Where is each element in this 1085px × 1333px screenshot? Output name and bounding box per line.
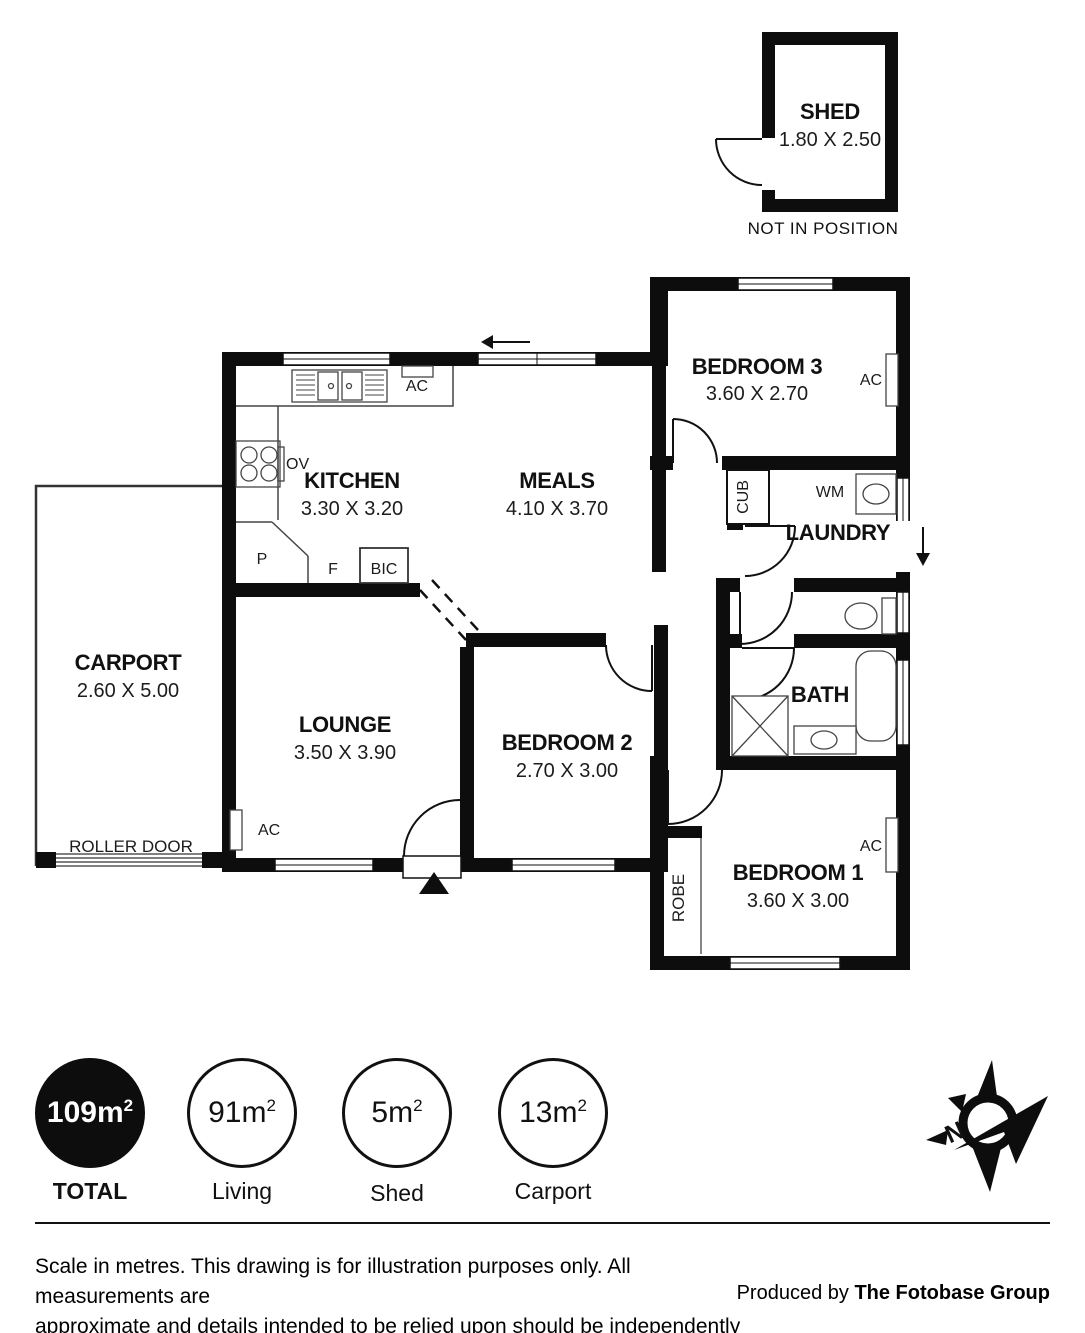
wm-label: WM	[816, 484, 844, 501]
bic-label: BIC	[371, 561, 398, 578]
footer-divider	[35, 1222, 1050, 1224]
bedroom2-dims: 2.70 X 3.00	[516, 760, 618, 782]
shed-area-circle: 5m2	[342, 1058, 452, 1168]
entry-arrow-laundry-icon	[916, 527, 930, 566]
total-area-value: 109m	[47, 1096, 124, 1129]
laundry-label: LAUNDRY	[786, 520, 891, 545]
carport-outline	[36, 486, 222, 866]
carport-area-circle: 13m2	[498, 1058, 608, 1168]
bathtub-icon	[856, 651, 896, 741]
meals-dims: 4.10 X 3.70	[506, 498, 608, 520]
shed-label: SHED	[800, 99, 860, 124]
producer-credit: Produced by The Fotobase Group	[737, 1282, 1050, 1305]
fridge-label: F	[328, 561, 338, 578]
shed-dims: 1.80 X 2.50	[779, 129, 881, 151]
disclaimer-line1: Scale in metres. This drawing is for ill…	[35, 1252, 755, 1312]
shed-door	[716, 139, 762, 185]
pantry-label: P	[257, 551, 268, 568]
ov-label: OV	[286, 456, 309, 473]
carport-area-label: Carport	[473, 1178, 633, 1205]
vanity-icon	[794, 726, 856, 754]
lounge-dims: 3.50 X 3.90	[294, 742, 396, 764]
floorplan-page: SHED 1.80 X 2.50 NOT IN POSITION	[0, 0, 1085, 1333]
bedroom3-ac-label: AC	[860, 372, 882, 389]
compass-north-icon: N	[926, 1060, 1048, 1192]
kitchen-dims: 3.30 X 3.20	[301, 498, 403, 520]
disclaimer-text: Scale in metres. This drawing is for ill…	[35, 1252, 755, 1333]
living-area-circle: 91m2	[187, 1058, 297, 1168]
kitchen-ac-box	[402, 366, 433, 377]
washing-machine-icon	[856, 474, 896, 514]
kitchen-ac-label: AC	[406, 378, 428, 395]
lounge-label: LOUNGE	[299, 712, 391, 737]
bedroom3-label: BEDROOM 3	[692, 354, 823, 379]
shed-note: NOT IN POSITION	[748, 219, 899, 238]
robe-label: ROBE	[669, 874, 688, 922]
living-area-value: 91m	[208, 1096, 266, 1129]
cub-label: CUB	[735, 480, 752, 514]
carport-area-value: 13m	[519, 1096, 577, 1129]
produced-by-text: Produced by	[737, 1282, 855, 1304]
living-area-label: Living	[162, 1178, 322, 1205]
toilet-icon	[845, 598, 896, 634]
total-area-circle: 109m2	[35, 1058, 145, 1168]
bedroom1-dims: 3.60 X 3.00	[747, 890, 849, 912]
laundry-exterior-door	[895, 521, 911, 572]
dashed-opening	[420, 580, 478, 640]
lounge-ac-label: AC	[258, 822, 280, 839]
ac-units	[230, 354, 898, 872]
entry-door-leaf	[403, 856, 461, 878]
sink-icon	[292, 370, 387, 402]
entry-arrow-top-icon	[481, 335, 530, 349]
shower-icon	[732, 696, 788, 756]
shed-area-value: 5m	[371, 1096, 413, 1129]
kitchen-label: KITCHEN	[304, 468, 400, 493]
bedroom3-dims: 3.60 X 2.70	[706, 383, 808, 405]
bedroom1-label: BEDROOM 1	[733, 860, 864, 885]
meals-label: MEALS	[519, 468, 595, 493]
bath-label: BATH	[791, 682, 849, 707]
total-area-label: TOTAL	[10, 1178, 170, 1205]
bedroom1-ac-label: AC	[860, 838, 882, 855]
bedroom2-label: BEDROOM 2	[502, 730, 633, 755]
carport-label: CARPORT	[75, 650, 183, 675]
producer-name: The Fotobase Group	[854, 1282, 1050, 1304]
roller-door-label: ROLLER DOOR	[69, 837, 193, 856]
shed-area-label: Shed	[317, 1180, 477, 1207]
carport-dims: 2.60 X 5.00	[77, 680, 179, 702]
stove-icon	[236, 441, 284, 487]
disclaimer-line2: approximate and details intended to be r…	[35, 1312, 755, 1333]
